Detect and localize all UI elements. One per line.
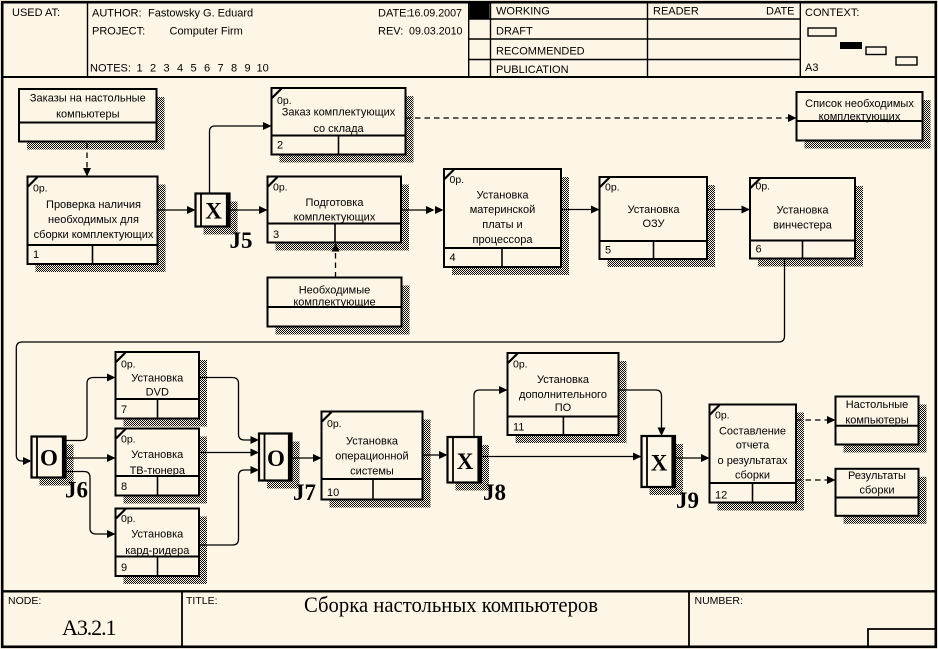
svg-text:09.03.2010: 09.03.2010	[409, 26, 463, 38]
svg-text:Установка: Установка	[537, 374, 590, 386]
svg-text:11: 11	[513, 422, 524, 434]
svg-text:со склада: со склада	[313, 123, 364, 135]
svg-text:PUBLICATION: PUBLICATION	[496, 64, 569, 76]
svg-text:0р.: 0р.	[605, 182, 620, 194]
svg-text:Список необходимых: Список необходимых	[805, 98, 914, 110]
svg-text:10: 10	[257, 63, 269, 75]
svg-text:RECOMMENDED: RECOMMENDED	[496, 46, 585, 58]
svg-text:Установка: Установка	[131, 373, 184, 385]
svg-text:3: 3	[164, 63, 170, 75]
svg-text:DATE: DATE	[766, 6, 795, 18]
svg-text:комплектующих: комплектующих	[294, 212, 376, 224]
svg-text:Установка: Установка	[131, 529, 184, 541]
svg-text:компьютеры: компьютеры	[56, 109, 119, 121]
svg-text:X: X	[651, 451, 668, 476]
svg-text:J7: J7	[293, 480, 316, 505]
svg-text:PROJECT:: PROJECT:	[92, 26, 145, 38]
svg-text:0р.: 0р.	[121, 359, 136, 371]
svg-text:A3.2.1: A3.2.1	[62, 615, 117, 640]
svg-text:4: 4	[450, 252, 456, 264]
svg-text:NOTES:: NOTES:	[90, 63, 131, 75]
svg-text:5: 5	[605, 245, 611, 257]
svg-text:X: X	[457, 449, 474, 474]
svg-text:материнской: материнской	[470, 204, 536, 216]
svg-text:DVD: DVD	[146, 387, 169, 399]
svg-text:J9: J9	[676, 488, 699, 513]
svg-text:отчета: отчета	[736, 440, 770, 452]
svg-text:винчестера: винчестера	[773, 220, 833, 232]
svg-text:6: 6	[204, 63, 210, 75]
svg-text:Заказы на настольные: Заказы на настольные	[30, 93, 146, 105]
svg-text:5: 5	[191, 63, 197, 75]
svg-text:Проверка наличия: Проверка наличия	[46, 199, 141, 211]
svg-text:необходимых для: необходимых для	[48, 214, 139, 226]
svg-text:10: 10	[327, 487, 339, 499]
svg-text:ТВ-тюнера: ТВ-тюнера	[130, 465, 186, 477]
svg-text:X: X	[205, 199, 222, 224]
svg-text:ПО: ПО	[555, 402, 572, 414]
svg-text:0р.: 0р.	[121, 434, 136, 446]
svg-text:Установка: Установка	[346, 436, 399, 448]
svg-text:AUTHOR:: AUTHOR:	[92, 8, 142, 20]
svg-text:дополнительного: дополнительного	[519, 389, 607, 401]
svg-text:0р.: 0р.	[715, 410, 730, 422]
svg-text:J6: J6	[65, 478, 88, 503]
svg-text:A3: A3	[805, 62, 818, 74]
svg-text:1: 1	[137, 63, 143, 75]
svg-text:3: 3	[273, 229, 279, 241]
svg-text:комплектующие: комплектующие	[293, 297, 375, 309]
svg-text:операционной: операционной	[335, 451, 408, 463]
svg-text:8: 8	[231, 63, 237, 75]
svg-text:системы: системы	[350, 466, 394, 478]
svg-text:0р.: 0р.	[327, 418, 342, 430]
svg-text:Установка: Установка	[777, 205, 830, 217]
svg-text:O: O	[40, 446, 58, 471]
svg-text:сборки: сборки	[735, 470, 770, 482]
svg-text:кард-ридера: кард-ридера	[125, 545, 190, 557]
svg-text:REV:: REV:	[378, 26, 403, 38]
svg-text:0р.: 0р.	[33, 183, 48, 195]
svg-text:6: 6	[756, 244, 762, 256]
svg-text:0р.: 0р.	[277, 95, 292, 107]
svg-text:TITLE:: TITLE:	[186, 595, 218, 607]
svg-text:Computer Firm: Computer Firm	[170, 26, 243, 38]
svg-text:комплектующих: комплектующих	[819, 111, 901, 123]
svg-text:Подготовка: Подготовка	[306, 197, 365, 209]
svg-text:сборки комплектующих: сборки комплектующих	[34, 229, 154, 241]
svg-text:7: 7	[218, 63, 224, 75]
svg-text:Заказ комплектующих: Заказ комплектующих	[282, 107, 396, 119]
svg-text:J5: J5	[230, 228, 253, 253]
svg-text:12: 12	[715, 490, 727, 502]
svg-text:Результаты: Результаты	[848, 470, 906, 482]
svg-text:процессора: процессора	[473, 234, 534, 246]
svg-text:платы и: платы и	[482, 219, 522, 231]
svg-text:9: 9	[245, 63, 251, 75]
svg-text:USED AT:: USED AT:	[12, 7, 60, 19]
svg-text:DRAFT: DRAFT	[496, 26, 533, 38]
svg-text:9: 9	[121, 562, 127, 574]
svg-text:1: 1	[33, 249, 39, 261]
svg-text:Сборка настольных компьютеров: Сборка настольных компьютеров	[304, 592, 598, 617]
svg-text:O: O	[267, 446, 285, 471]
svg-text:Установка: Установка	[477, 190, 530, 202]
svg-text:0р.: 0р.	[756, 181, 771, 193]
svg-text:компьютеры: компьютеры	[845, 415, 908, 427]
svg-text:4: 4	[177, 63, 183, 75]
svg-text:о результатах: о результатах	[718, 455, 788, 467]
svg-text:WORKING: WORKING	[496, 6, 550, 18]
svg-text:0р.: 0р.	[450, 174, 465, 186]
svg-text:DATE:: DATE:	[378, 8, 410, 20]
svg-text:Составление: Составление	[719, 426, 786, 438]
svg-text:NODE:: NODE:	[8, 595, 41, 607]
svg-text:Fastowsky G. Eduard: Fastowsky G. Eduard	[148, 8, 253, 20]
svg-text:7: 7	[121, 404, 127, 416]
svg-text:Установка: Установка	[628, 204, 681, 216]
svg-text:READER: READER	[653, 6, 699, 18]
svg-text:0р.: 0р.	[513, 359, 528, 371]
svg-text:ОЗУ: ОЗУ	[642, 218, 665, 230]
svg-text:сборки: сборки	[860, 485, 895, 497]
svg-text:2: 2	[277, 140, 283, 152]
svg-text:J8: J8	[483, 480, 506, 505]
svg-text:0р.: 0р.	[273, 182, 288, 194]
svg-text:Установка: Установка	[131, 449, 184, 461]
svg-text:2: 2	[150, 63, 156, 75]
svg-text:CONTEXT:: CONTEXT:	[805, 7, 859, 19]
svg-text:Настольные: Настольные	[846, 399, 909, 411]
svg-text:8: 8	[121, 481, 127, 493]
svg-text:NUMBER:: NUMBER:	[695, 595, 743, 607]
svg-text:0р.: 0р.	[121, 513, 136, 525]
svg-text:Необходимые: Необходимые	[299, 285, 371, 297]
svg-text:16.09.2007: 16.09.2007	[409, 8, 463, 20]
